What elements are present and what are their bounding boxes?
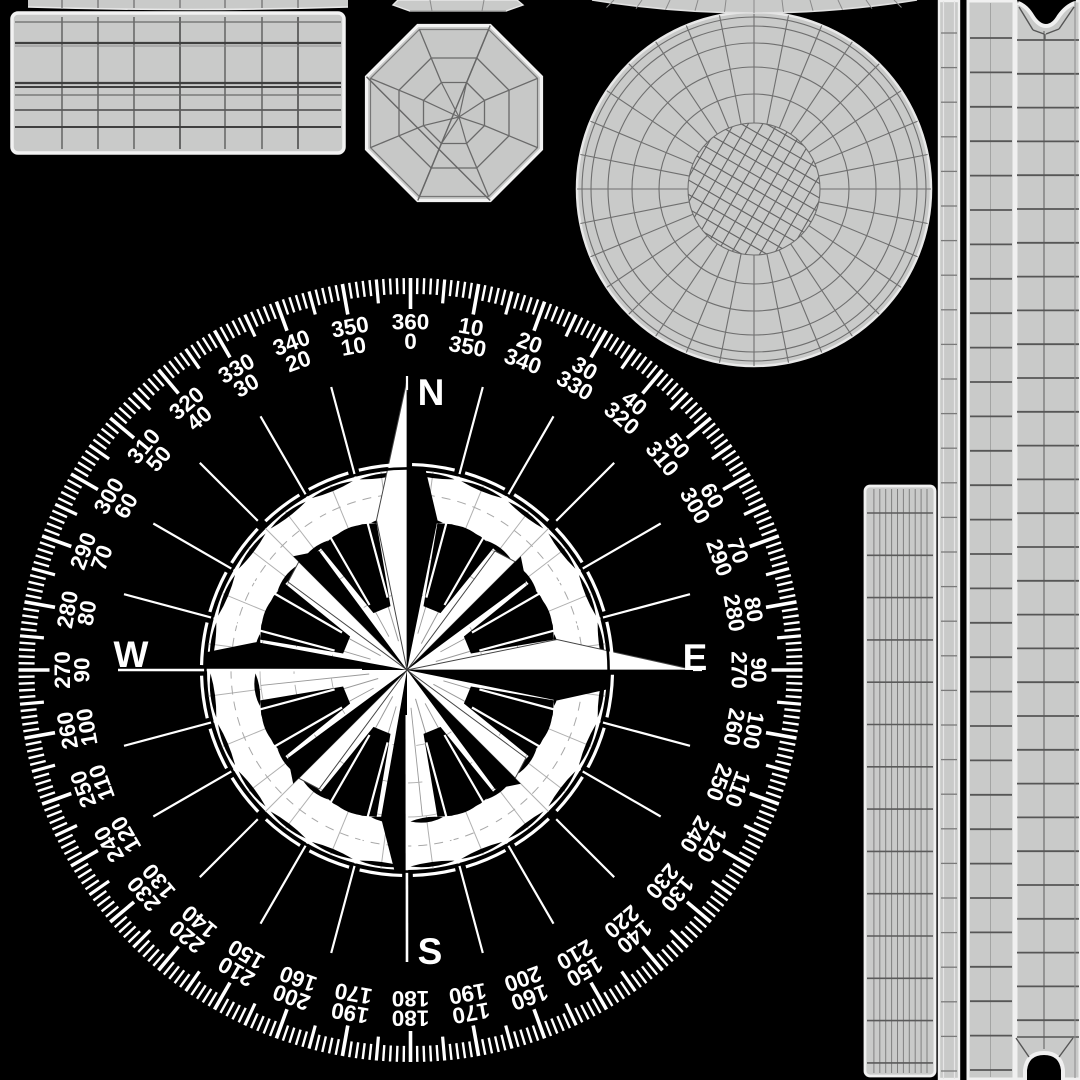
- svg-text:0: 0: [404, 329, 417, 354]
- svg-text:E: E: [683, 637, 708, 678]
- svg-text:180: 180: [392, 986, 430, 1011]
- svg-text:W: W: [114, 634, 149, 675]
- svg-text:N: N: [418, 372, 445, 413]
- svg-text:270: 270: [727, 651, 752, 689]
- svg-text:80: 80: [73, 598, 102, 627]
- svg-text:90: 90: [70, 657, 95, 682]
- svg-text:10: 10: [339, 332, 368, 361]
- svg-text:S: S: [418, 931, 443, 972]
